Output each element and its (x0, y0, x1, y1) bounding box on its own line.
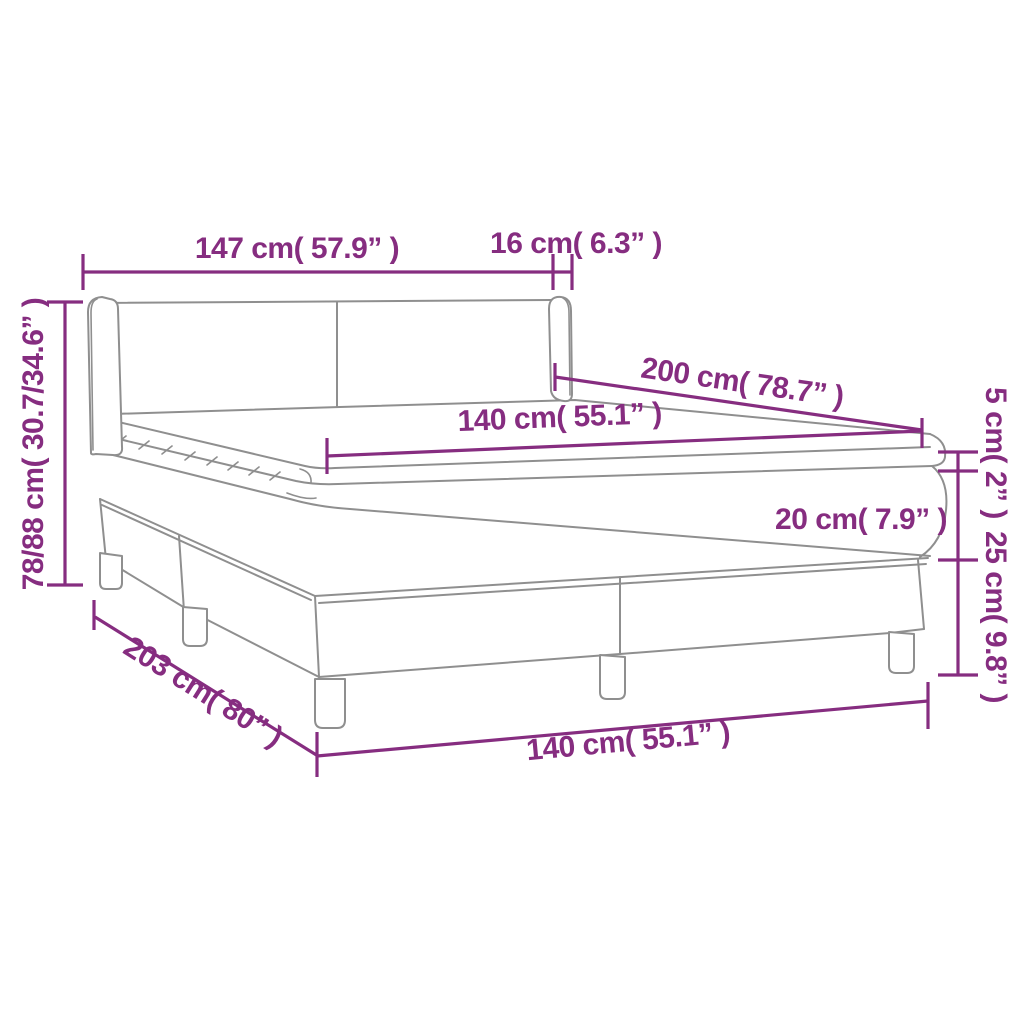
bed-leg-3 (315, 679, 345, 728)
dim-line-width-top (327, 431, 922, 456)
dimension-labels: 147 cm( 57.9” ) 16 cm( 6.3” ) 78/88 cm( … (17, 227, 1012, 767)
label-headboard-side-depth: 16 cm( 6.3” ) (490, 227, 662, 260)
bed-dimension-svg: 147 cm( 57.9” ) 16 cm( 6.3” ) 78/88 cm( … (0, 0, 1024, 1024)
label-mattress-width-top: 140 cm( 55.1” ) (457, 397, 662, 438)
label-headboard-width: 147 cm( 57.9” ) (195, 232, 399, 265)
label-bed-width-bottom: 140 cm( 55.1” ) (525, 716, 731, 767)
label-mattress-height: 20 cm( 7.9” ) (775, 503, 947, 536)
mattress-corner-fold-1 (300, 469, 311, 483)
bed-leg-2 (183, 607, 207, 646)
base-left-top-edge-inner (102, 505, 311, 600)
base-right-edge (918, 560, 924, 629)
bed-leg-4 (600, 655, 625, 699)
bed-leg-5 (889, 632, 914, 673)
base-left-seam (179, 536, 184, 611)
base-left-top-edge (100, 499, 315, 596)
base-front-corner-edge (315, 596, 319, 677)
product-dimension-diagram: 147 cm( 57.9” ) 16 cm( 6.3” ) 78/88 cm( … (0, 0, 1024, 1024)
base-front-top-edge (315, 558, 928, 596)
label-base-height: 25 cm( 9.8” ) (979, 531, 1012, 703)
label-topper-height: 5 cm( 2” ) (979, 387, 1012, 519)
mattress-corner-fold-2 (287, 493, 316, 498)
base-head-edge (100, 499, 106, 560)
bed-leg-1 (100, 553, 122, 589)
topper-right-end (930, 434, 945, 466)
base-front-top-edge-inner (319, 564, 926, 603)
topper-seam (106, 436, 932, 484)
headboard-top-edge (97, 300, 551, 303)
label-headboard-height: 78/88 cm( 30.7/34.6” ) (17, 298, 50, 591)
